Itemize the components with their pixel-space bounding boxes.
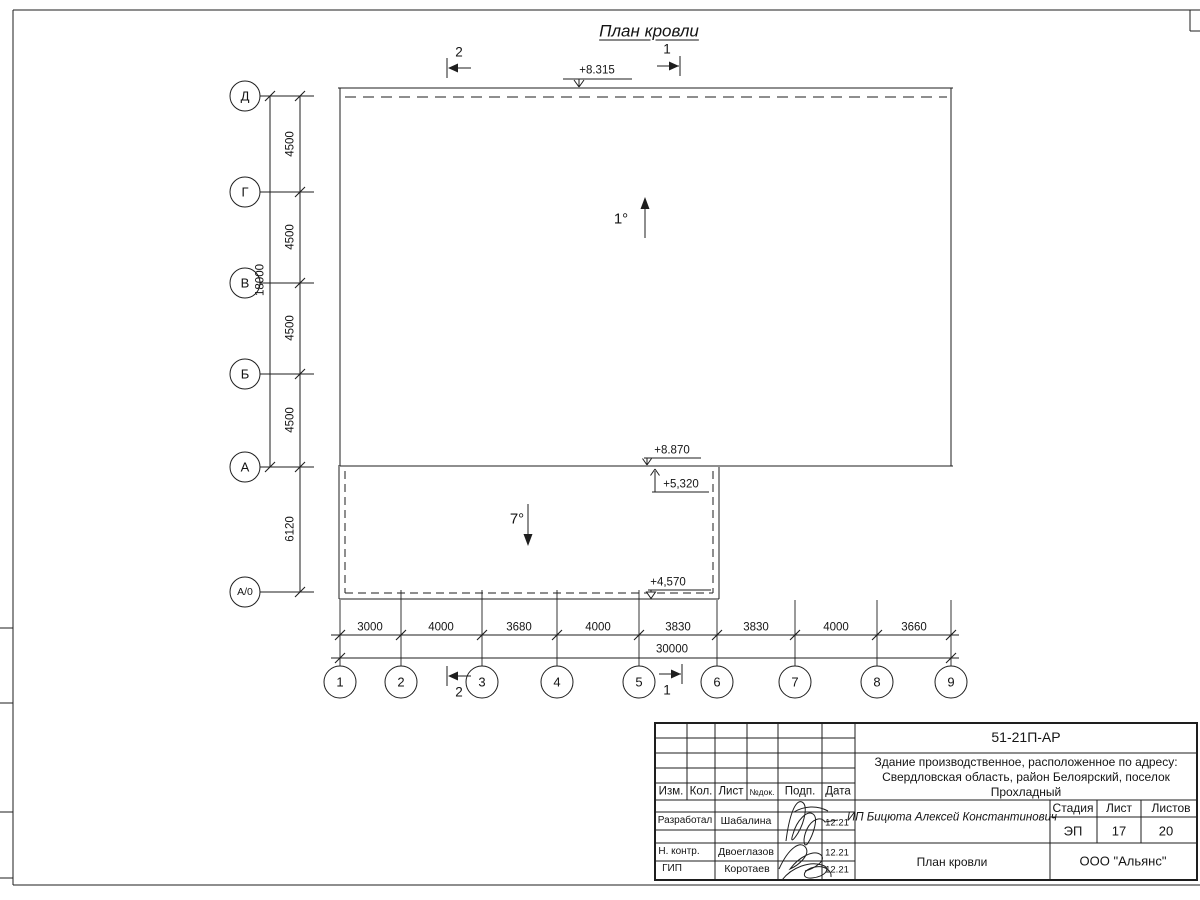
sign-date: 12.21 [825, 848, 849, 858]
dim-label: 4500 [285, 224, 297, 250]
change-header-izm: Изм. [659, 786, 684, 798]
row-axis-bubble-label: Д [241, 90, 250, 103]
col-axes-linework [324, 590, 967, 698]
col-axis-bubble-label: 1 [336, 676, 343, 689]
elevation-mark: +5,320 [663, 479, 699, 491]
dim-label: 3830 [743, 622, 769, 634]
dim-label: 4500 [285, 407, 297, 433]
sign-name: Коротаев [724, 864, 769, 875]
stamp-header-sheets: Листов [1152, 802, 1191, 814]
elevation-mark-arrows [563, 79, 711, 599]
stamp-header-stage: Стадия [1053, 802, 1094, 814]
sign-date: 12.21 [825, 818, 849, 828]
dim-label: 4500 [285, 131, 297, 157]
elevation-mark: +8.315 [579, 65, 615, 77]
dim-label: 4500 [285, 315, 297, 341]
sign-name: Двоеглазов [718, 847, 774, 858]
col-axis-bubble-label: 5 [635, 676, 642, 689]
titleblock-object-line: Здание производственное, расположенное п… [874, 756, 1177, 768]
main-roof-outline [338, 88, 953, 466]
elevation-mark: +4,570 [650, 577, 686, 589]
dim-label: 4000 [585, 622, 611, 634]
sign-name: Шабалина [721, 816, 772, 827]
row-axis-bubble-label: В [241, 277, 250, 290]
col-axis-bubble-label: 7 [791, 676, 798, 689]
change-header-ndok: №док. [750, 788, 775, 797]
col-axis-bubble-label: 9 [947, 676, 954, 689]
stamp-sheet: 17 [1112, 825, 1126, 838]
dim-total-label: 18000 [255, 264, 267, 296]
sheet-frame [0, 10, 1200, 885]
change-header-data: Дата [825, 786, 850, 798]
dim-label: 4000 [428, 622, 454, 634]
row-axis-bubble-label: А/0 [237, 587, 253, 598]
dim-label: 3000 [357, 622, 383, 634]
sign-role: Разработал [658, 816, 712, 826]
sign-role: Н. контр. [658, 847, 699, 857]
section-mark-label: 2 [455, 685, 463, 699]
elevation-mark: +8.870 [654, 445, 690, 457]
dim-total-label: 30000 [656, 644, 688, 656]
titleblock-object-line: Прохладный [991, 786, 1061, 798]
titleblock-company: ООО "Альянс" [1080, 855, 1167, 868]
signature-scribble-2 [779, 845, 831, 880]
sign-role: ГИП [662, 864, 682, 874]
sign-date: 12.21 [825, 865, 849, 875]
stamp-header-sheet: Лист [1106, 802, 1132, 814]
row-axis-bubble-label: Г [241, 186, 248, 199]
titleblock-sheet-title: План кровли [917, 856, 988, 868]
change-header-list: Лист [719, 786, 744, 798]
change-header-podp: Подп. [785, 786, 816, 798]
slope-label: 1° [614, 212, 628, 227]
section-mark-label: 2 [455, 45, 463, 59]
titleblock-client: ИП Бицюта Алексей Константинович [847, 812, 1057, 824]
titleblock-object-line: Свердловская область, район Белоярский, … [882, 771, 1170, 783]
drawing-title: План кровли [599, 23, 699, 40]
dim-label: 6120 [285, 516, 297, 542]
row-axes-linework [230, 81, 314, 607]
col-axis-bubble-label: 2 [397, 676, 404, 689]
section-mark-label: 1 [663, 42, 671, 56]
slope-arrow-down-icon [524, 504, 533, 546]
dim-label: 3830 [665, 622, 691, 634]
stamp-sheets: 20 [1159, 825, 1173, 838]
col-axis-bubble-label: 8 [873, 676, 880, 689]
row-axis-bubble-label: Б [241, 368, 250, 381]
change-header-kol: Кол. [690, 786, 713, 798]
col-axis-bubble-label: 6 [713, 676, 720, 689]
slope-arrow-up-icon [641, 197, 650, 238]
dim-label: 3660 [901, 622, 927, 634]
col-axis-bubble-label: 3 [478, 676, 485, 689]
section-mark-label: 1 [663, 683, 671, 697]
row-axis-bubble-label: А [241, 461, 250, 474]
dim-label: 3680 [506, 622, 532, 634]
titleblock-doc-number: 51-21П-АР [991, 730, 1060, 744]
slope-label: 7° [510, 512, 524, 527]
col-axis-bubble-label: 4 [553, 676, 560, 689]
dim-label: 4000 [823, 622, 849, 634]
stamp-stage: ЭП [1064, 825, 1083, 838]
